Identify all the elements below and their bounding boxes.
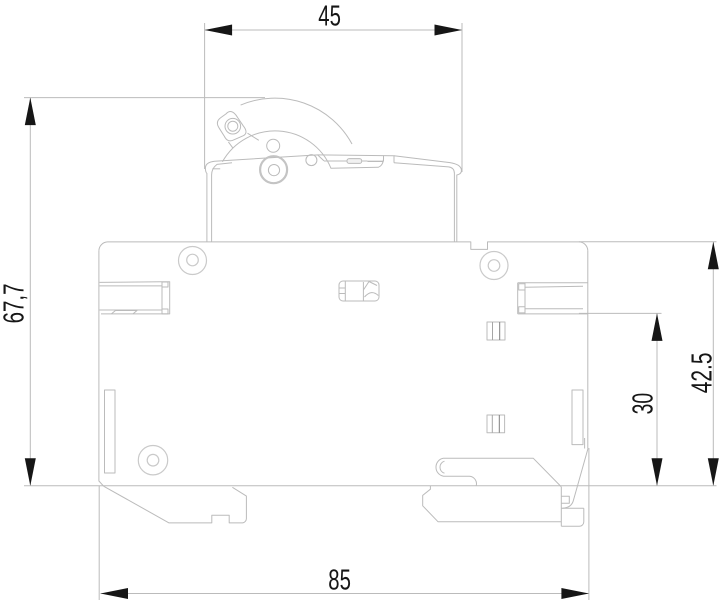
svg-text:42.5: 42.5 [687, 353, 719, 394]
svg-text:85: 85 [328, 564, 351, 596]
svg-text:67,7: 67,7 [0, 284, 31, 324]
svg-text:30: 30 [627, 393, 659, 415]
svg-text:45: 45 [318, 0, 341, 32]
